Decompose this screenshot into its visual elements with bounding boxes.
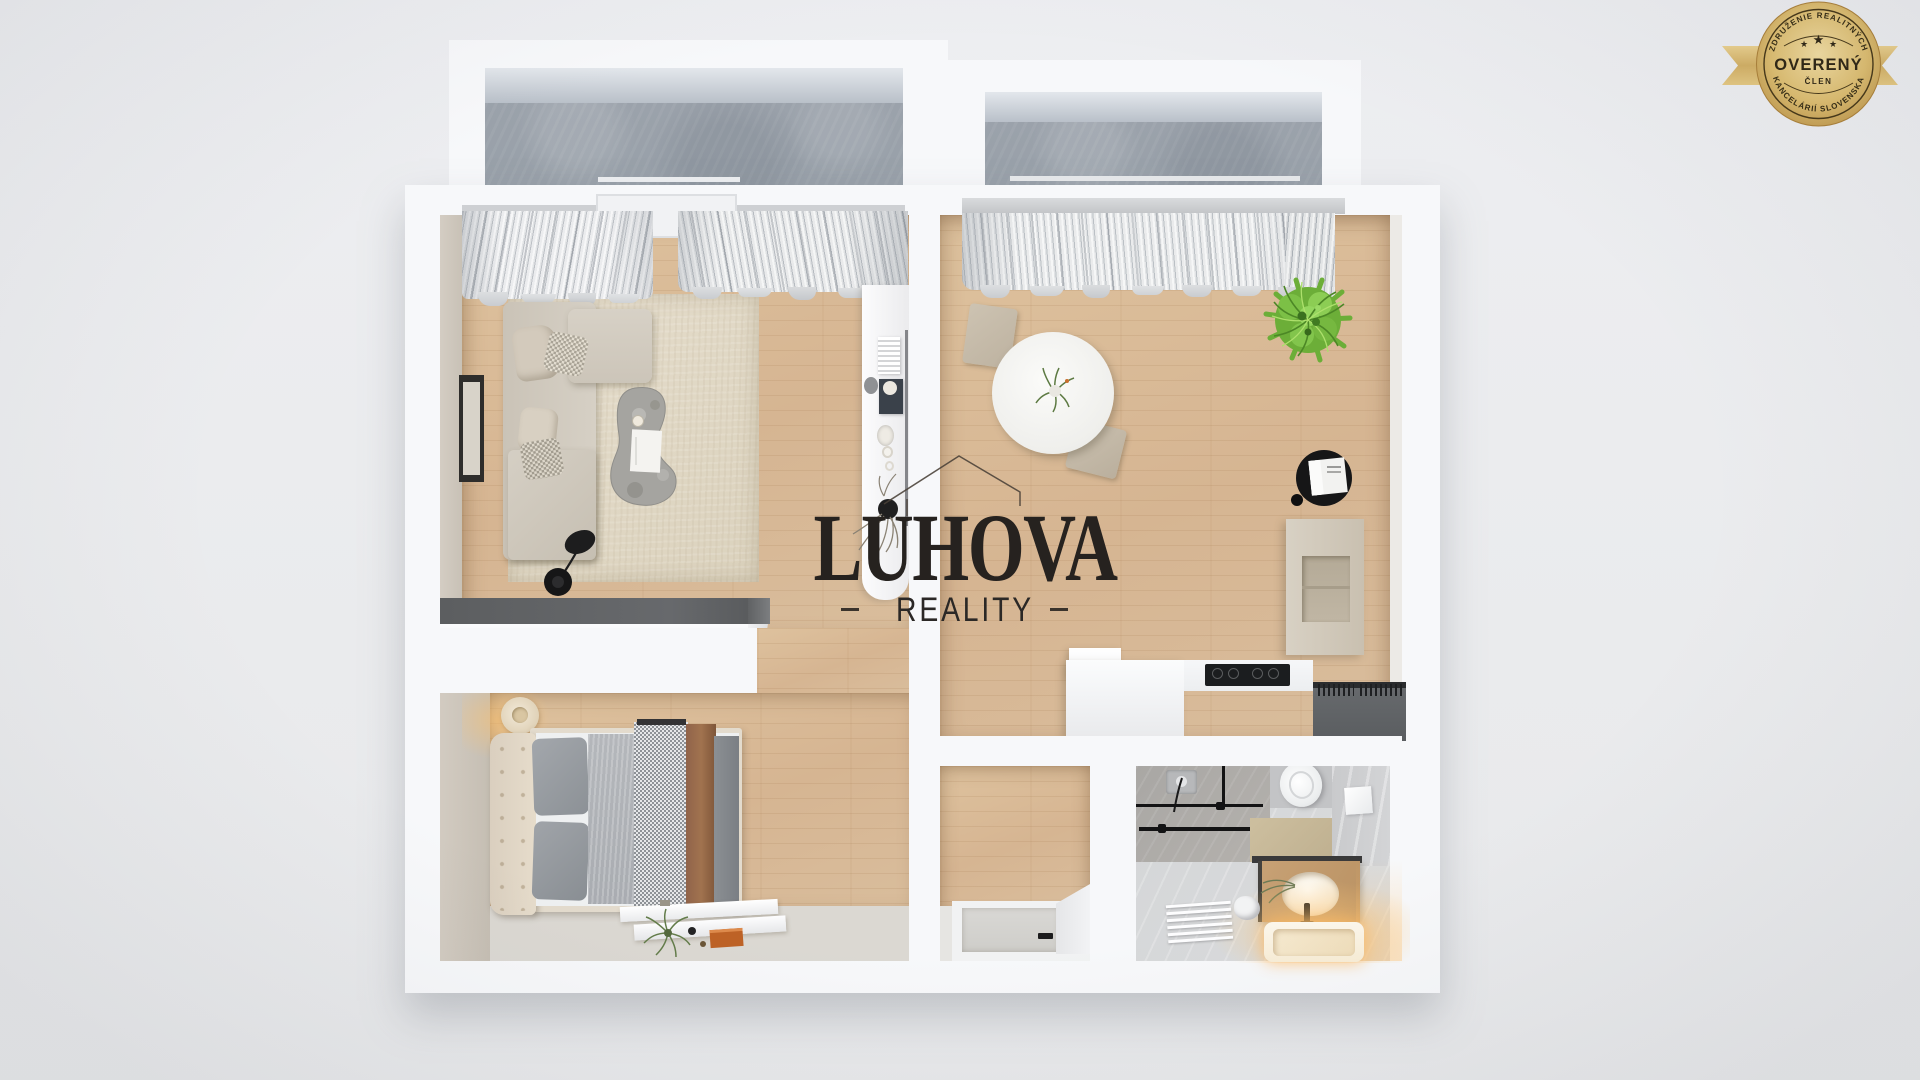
svg-text:★: ★ [1813, 32, 1825, 47]
svg-text:★: ★ [1829, 39, 1837, 49]
svg-text:★: ★ [1800, 39, 1808, 49]
svg-text:ČLEN: ČLEN [1805, 77, 1833, 86]
svg-text:OVERENÝ: OVERENÝ [1774, 55, 1862, 74]
